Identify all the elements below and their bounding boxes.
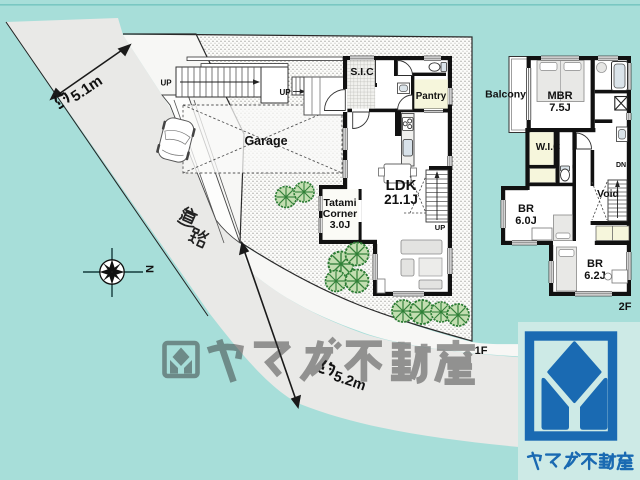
svg-text:Void: Void <box>597 188 619 200</box>
svg-text:BR: BR <box>587 258 603 270</box>
svg-text:Garage: Garage <box>244 134 287 148</box>
svg-text:UP: UP <box>160 79 172 88</box>
svg-text:21.1J: 21.1J <box>384 192 418 207</box>
svg-text:S.I.C: S.I.C <box>350 66 374 78</box>
svg-text:6.0J: 6.0J <box>515 215 536 227</box>
svg-text:7.5J: 7.5J <box>549 102 570 114</box>
svg-text:3.0J: 3.0J <box>330 219 351 231</box>
svg-text:DN: DN <box>616 162 626 169</box>
svg-text:Pantry: Pantry <box>416 91 447 102</box>
svg-text:Balcony: Balcony <box>485 89 526 101</box>
svg-text:UP: UP <box>279 88 291 97</box>
svg-text:UP: UP <box>435 223 445 232</box>
svg-text:2F: 2F <box>619 301 632 313</box>
svg-text:MBR: MBR <box>547 90 572 102</box>
svg-text:1F: 1F <box>475 345 488 357</box>
svg-text:N: N <box>143 265 155 273</box>
svg-text:BR: BR <box>518 203 534 215</box>
svg-text:6.2J: 6.2J <box>584 270 605 282</box>
